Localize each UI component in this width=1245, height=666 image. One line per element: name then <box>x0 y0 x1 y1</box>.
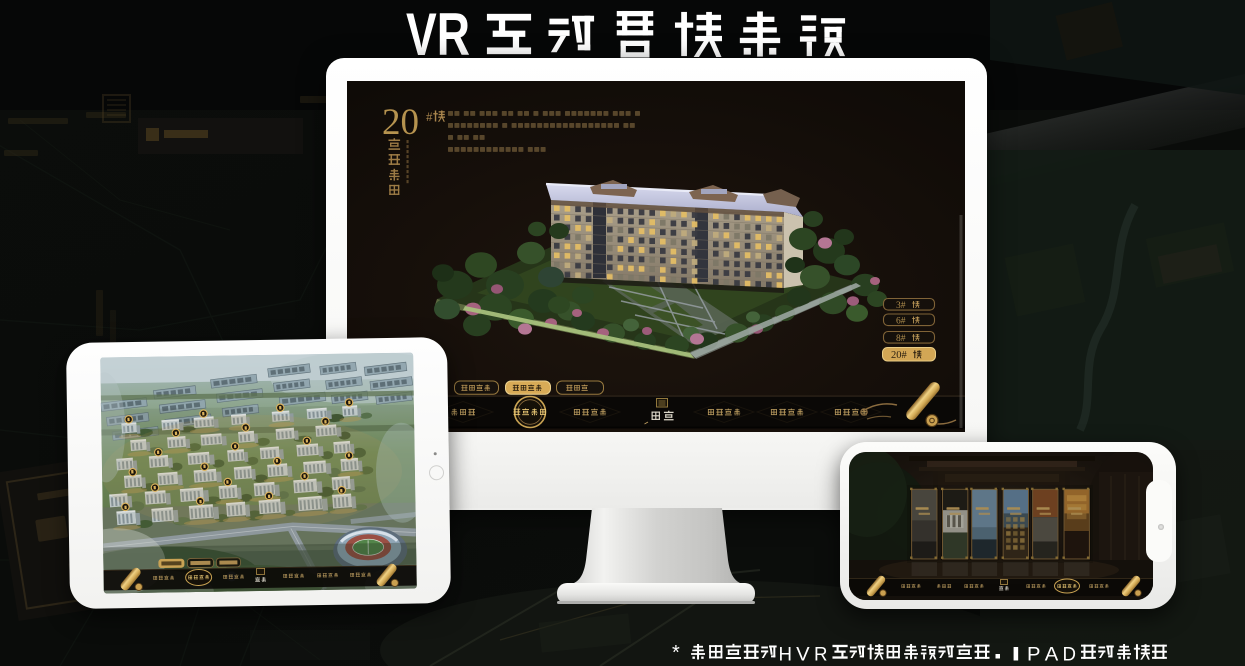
svg-text:8#: 8# <box>896 334 906 344</box>
svg-text:I: I <box>1009 645 1023 666</box>
svg-text:3#: 3# <box>896 301 906 311</box>
svg-text:D: D <box>1063 645 1077 666</box>
svg-text:VR: VR <box>406 4 470 60</box>
svg-text:6#: 6# <box>896 316 906 326</box>
svg-text:*: * <box>672 642 680 664</box>
svg-text:20: 20 <box>382 102 419 143</box>
svg-text:P: P <box>1027 645 1041 666</box>
svg-text:#: # <box>426 109 433 124</box>
svg-text:R: R <box>814 645 828 666</box>
svg-text:H: H <box>779 645 793 666</box>
svg-text:V: V <box>796 645 810 666</box>
svg-text:A: A <box>1045 645 1059 666</box>
svg-text:20#: 20# <box>891 350 908 361</box>
